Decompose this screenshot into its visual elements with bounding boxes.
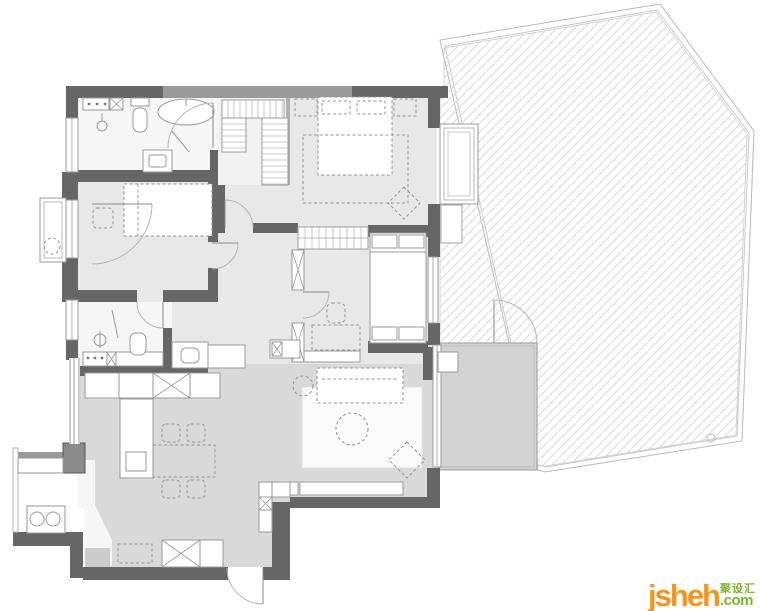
wall-bottom — [83, 567, 228, 580]
watermark-tld: .com — [720, 595, 753, 608]
toilet1-bowl — [133, 108, 147, 132]
alcove-counter — [18, 458, 63, 473]
wall-bath1-south — [66, 170, 218, 182]
boundary-left-strip — [13, 448, 18, 532]
wall-closet-west — [210, 150, 218, 172]
terrace-niche-box — [441, 205, 462, 243]
door-arc-entry — [227, 568, 263, 604]
wall-bottomleft-step — [70, 532, 83, 578]
closet-shelf-top — [222, 100, 284, 118]
wall-living-south — [290, 497, 437, 508]
wall-entry-stub — [263, 567, 290, 580]
floor-plan-svg — [0, 0, 760, 611]
bed3-shelf — [304, 351, 360, 362]
bath1-faucet-dot-2 — [96, 103, 99, 106]
watermark-brand: jsheh — [648, 584, 719, 608]
bath1-faucet-dot-1 — [88, 103, 91, 106]
column-kitchen — [63, 443, 85, 473]
sofa — [317, 368, 403, 403]
wall-alcove-top — [18, 452, 65, 458]
master-bed — [318, 97, 392, 175]
kitchen-counter-3 — [190, 373, 220, 398]
bed3-bench-left — [372, 327, 397, 340]
island-seat — [126, 452, 146, 471]
wall-living-east — [427, 468, 440, 508]
toilet2 — [130, 333, 146, 355]
bed2 — [124, 184, 212, 236]
bath2-faucet-dot-3 — [101, 357, 104, 360]
wall-bottomleft-band — [13, 532, 77, 546]
wall-right-lower — [428, 323, 440, 345]
bed3-pillow-right — [399, 235, 424, 248]
wall-hall-column — [215, 185, 225, 233]
floor-plan-page: jsheh 聚设汇 .com — [0, 0, 760, 611]
lower-counter-box — [200, 540, 223, 567]
kitchen-counter-2 — [119, 373, 153, 398]
wall-top-middle — [162, 86, 352, 98]
watermark-stack: 聚设汇 .com — [720, 584, 756, 608]
toilet1-tank — [131, 98, 149, 106]
floor-entry-niche — [85, 548, 110, 567]
kitchen-counter-1 — [85, 373, 119, 398]
wall-bath2-east — [163, 328, 172, 368]
wall-top-left — [73, 86, 163, 98]
pantry-box — [272, 482, 290, 497]
wall-corridor-west — [272, 502, 290, 567]
closet-shelf-right — [262, 118, 288, 185]
bed3-pillow-left — [372, 235, 397, 248]
closet-shelf-left — [222, 118, 246, 152]
deck-cabinet — [438, 352, 458, 372]
bath1-faucet-dot-3 — [104, 103, 107, 106]
wall-master-south — [253, 223, 298, 233]
hall-counter — [208, 345, 245, 368]
hall-vanity-basin — [181, 348, 199, 363]
watermark-logo: jsheh 聚设汇 .com — [648, 584, 756, 608]
bath2-faucet-dot-2 — [94, 357, 97, 360]
bed3-bench-right — [399, 327, 424, 340]
bay-window-master — [440, 124, 478, 204]
wall-right-upper — [428, 86, 440, 128]
bath1-vanity-basin — [149, 155, 166, 167]
wall-left-1 — [66, 86, 78, 118]
bath2-faucet-dot-1 — [87, 357, 90, 360]
wall-left-4 — [66, 338, 78, 360]
tv-console — [300, 482, 403, 495]
wall-bed2-south-right — [163, 290, 216, 302]
